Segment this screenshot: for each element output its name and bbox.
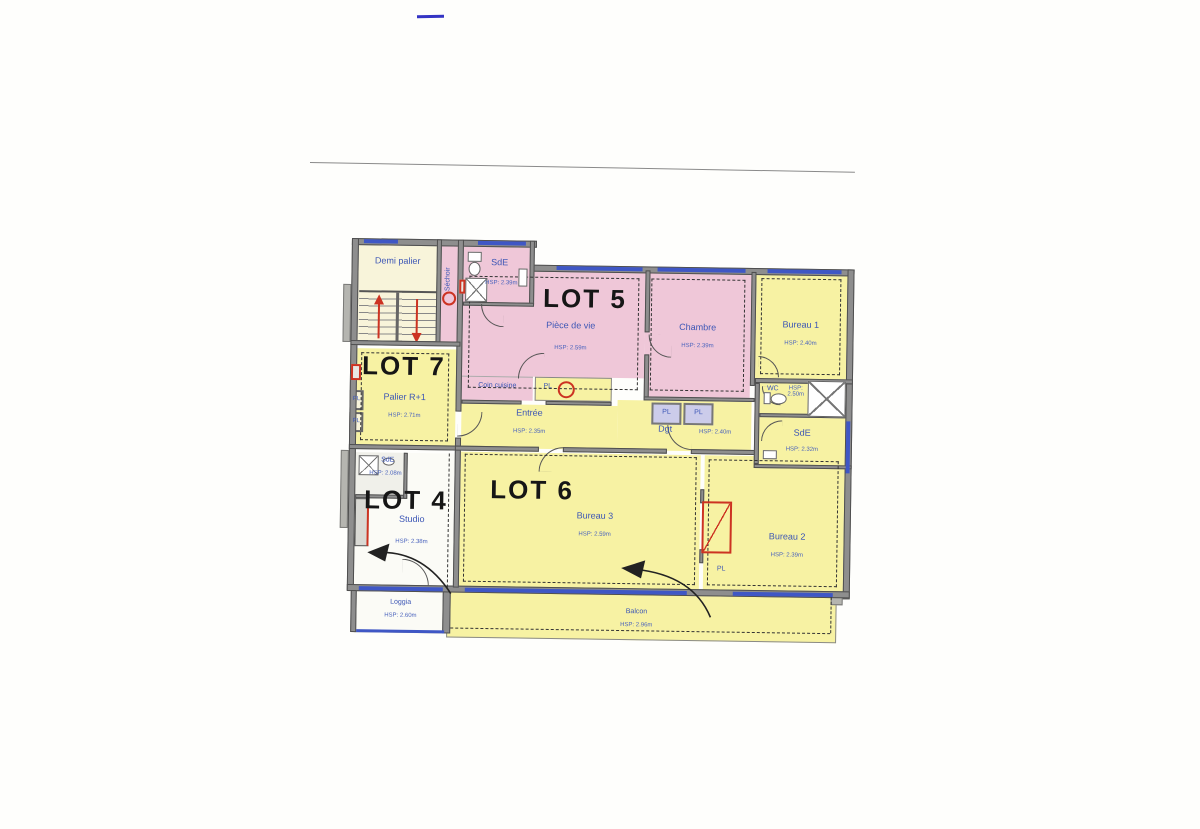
label-piece-de-vie: Pièce de vie	[511, 320, 631, 332]
hsp-wc: HSP: 2.50m	[780, 385, 812, 397]
hsp-sde-lot4: HSP: 2.08m	[366, 470, 404, 477]
label-bureau3: Bureau 3	[550, 511, 640, 522]
hsp-studio: HSP: 2.38m	[371, 538, 451, 545]
dash-rect-chambre	[650, 278, 746, 391]
hsp-sde-lot6: HSP: 2.32m	[767, 446, 837, 453]
water-heater-icon-pl	[558, 381, 575, 398]
scan-artifact-blue-dash	[417, 15, 444, 18]
scanned-page: LOT 5 LOT 7 LOT 4 LOT 6 Demi palier Séch…	[0, 0, 1200, 829]
tremie-hatch	[701, 501, 732, 553]
label-bureau2: Bureau 2	[740, 532, 835, 543]
wall-pdv-chambre-lower	[644, 354, 650, 400]
label-palier: Palier R+1	[362, 392, 448, 403]
label-pl-dgt-1: PL	[651, 408, 681, 416]
label-loggia: Loggia	[361, 598, 441, 607]
hsp-sde-lot5: HSP: 2.39m	[479, 280, 523, 287]
hsp-loggia: HSP: 2.60m	[360, 612, 440, 619]
lot4-title: LOT 4	[364, 484, 448, 516]
label-pl-entree: PL	[540, 383, 556, 391]
label-dgt: Dgt	[645, 424, 685, 434]
lot7-title: LOT 7	[362, 350, 446, 382]
label-sde-lot5: SdE	[480, 258, 520, 268]
window-demi-palier	[364, 239, 398, 244]
shower-tray-icon	[807, 381, 846, 418]
radiator-icon-sde	[459, 280, 465, 294]
window-loggia-outer	[356, 629, 444, 633]
wall-corridor-bottom-c	[691, 449, 755, 455]
label-sde-lot4: SdE	[375, 456, 401, 464]
staircase	[358, 290, 437, 345]
label-coin-cuisine: Coin cuisine	[462, 382, 533, 391]
lot6-title: LOT 6	[490, 474, 574, 506]
label-demi-palier: Demi palier	[362, 256, 434, 267]
hsp-dgt: HSP: 2.40m	[685, 429, 745, 436]
radiator-icon-palier	[351, 364, 361, 380]
hsp-palier: HSP: 2.71m	[361, 412, 447, 419]
scan-artifact-fold-line	[310, 162, 855, 173]
wall-under-demi-palier	[350, 340, 460, 347]
label-pl-palier-1: PL	[351, 396, 363, 402]
label-entree: Entrée	[489, 408, 569, 419]
label-sechoir: Séchoir	[444, 264, 452, 294]
label-bureau1: Bureau 1	[756, 320, 846, 331]
label-pl-dgt-2: PL	[683, 409, 713, 417]
lot5-title: LOT 5	[543, 283, 627, 315]
label-pl-bureau2: PL	[711, 565, 731, 573]
label-sde-lot6: SdE	[767, 428, 837, 439]
window-sde-lot5	[478, 241, 526, 246]
wall-pdv-chambre-upper	[645, 270, 651, 332]
window-right-side	[846, 421, 851, 473]
label-chambre: Chambre	[651, 322, 745, 333]
wall-loggia-left	[350, 590, 357, 632]
hsp-entree: HSP: 2.35m	[489, 428, 569, 435]
label-balcon: Balcon	[586, 608, 686, 617]
entry-arrow-studio-icon	[363, 540, 456, 595]
floor-plan: LOT 5 LOT 7 LOT 4 LOT 6 Demi palier Séch…	[346, 238, 855, 649]
label-pl-palier-2: PL	[350, 418, 362, 424]
stair-direction-arrows-icon	[358, 292, 437, 345]
wall-under-palier	[349, 444, 461, 451]
